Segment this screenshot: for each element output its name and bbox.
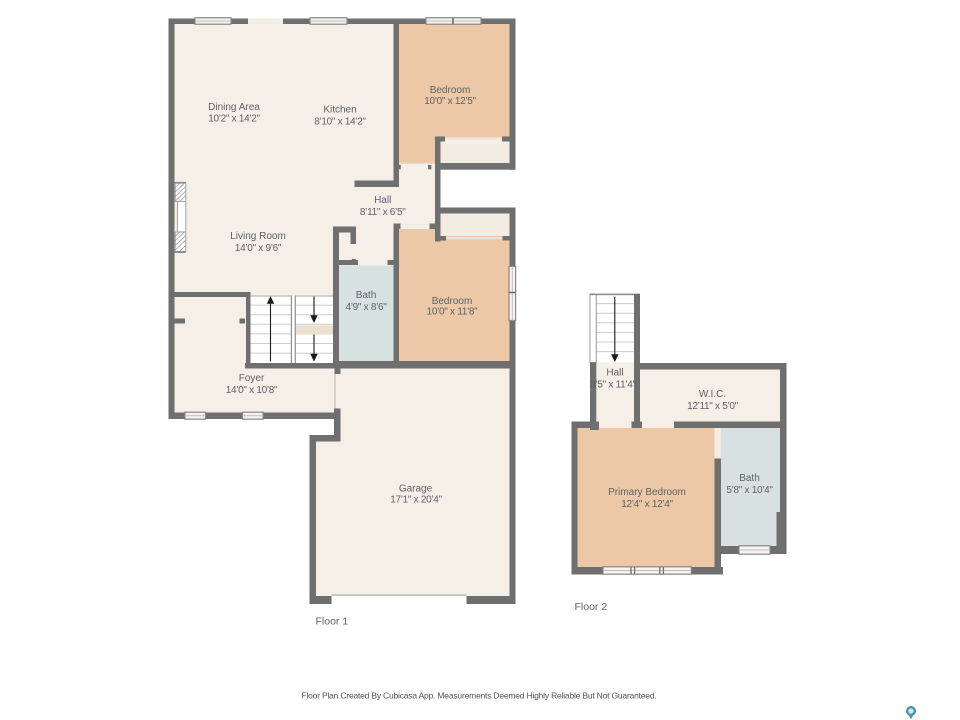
svg-text:17’1" x 20’4": 17’1" x 20’4" (390, 495, 442, 506)
svg-text:Primary Bedroom: Primary Bedroom (608, 487, 686, 498)
svg-text:8’11" x 6’5": 8’11" x 6’5" (360, 207, 406, 218)
svg-text:Floor Plan Created By Cubicasa: Floor Plan Created By Cubicasa App. Meas… (301, 691, 656, 701)
svg-text:Bath: Bath (356, 290, 377, 301)
svg-text:Dining Area: Dining Area (208, 102, 260, 113)
svg-text:Garage: Garage (399, 484, 433, 495)
svg-text:Hall: Hall (374, 195, 391, 206)
svg-text:Floor 1: Floor 1 (316, 616, 349, 628)
svg-text:Bath: Bath (739, 473, 760, 484)
svg-text:Hall: Hall (606, 368, 623, 379)
svg-text:Living Room: Living Room (230, 231, 286, 242)
svg-text:Kitchen: Kitchen (323, 105, 356, 116)
svg-text:Bedroom: Bedroom (430, 85, 471, 96)
svg-text:10’0" x 11’8": 10’0" x 11’8" (427, 307, 479, 318)
svg-text:10’0" x 12’5": 10’0" x 12’5" (424, 96, 476, 107)
svg-text:3’5" x 11’4": 3’5" x 11’4" (590, 380, 636, 391)
svg-text:12’11" x 5’0": 12’11" x 5’0" (687, 401, 739, 412)
svg-text:Foyer: Foyer (239, 373, 265, 384)
svg-text:Bedroom: Bedroom (432, 296, 473, 307)
svg-text:5’8" x 10’4": 5’8" x 10’4" (726, 485, 773, 496)
svg-text:4’9" x 8’6": 4’9" x 8’6" (345, 302, 387, 313)
svg-text:8’10" x 14’2": 8’10" x 14’2" (314, 117, 366, 128)
svg-text:10’2" x 14’2": 10’2" x 14’2" (208, 114, 260, 125)
svg-text:12’4" x 12’4": 12’4" x 12’4" (621, 499, 673, 510)
svg-text:14’0" x 10’8": 14’0" x 10’8" (226, 385, 278, 396)
svg-text:Floor 2: Floor 2 (575, 601, 608, 613)
svg-text:14’0" x 9’6": 14’0" x 9’6" (235, 243, 282, 254)
svg-text:W.I.C.: W.I.C. (699, 389, 726, 400)
